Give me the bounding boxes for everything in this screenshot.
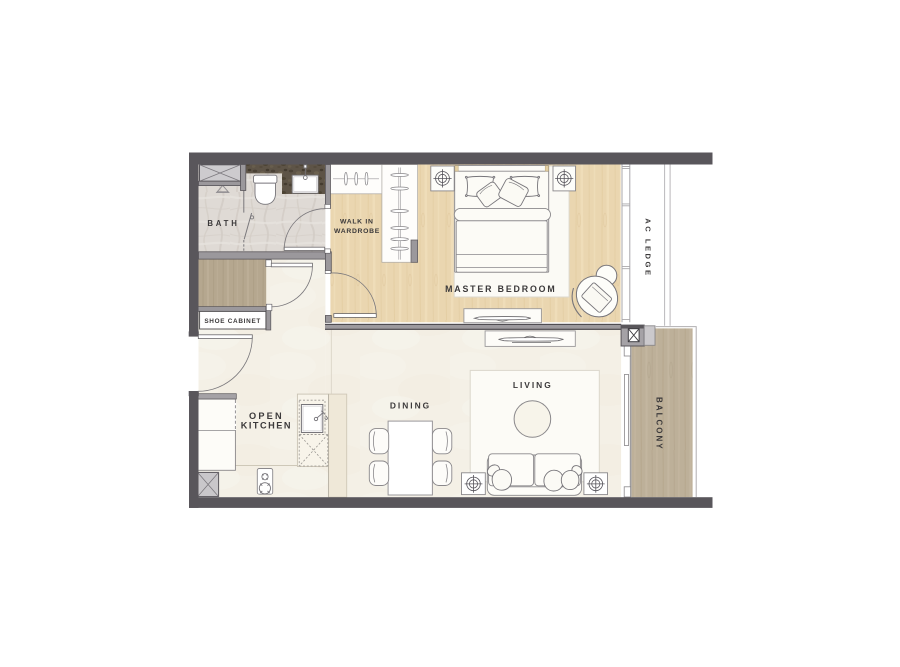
svg-text:SHOE CABINET: SHOE CABINET [204, 318, 261, 325]
svg-text:BATH: BATH [207, 219, 239, 228]
svg-text:WARDROBE: WARDROBE [334, 228, 380, 235]
svg-text:MASTER BEDROOM: MASTER BEDROOM [445, 284, 556, 294]
svg-text:WALK IN: WALK IN [340, 219, 374, 226]
svg-text:AC LEDGE: AC LEDGE [644, 218, 653, 277]
svg-text:KITCHEN: KITCHEN [241, 421, 292, 431]
svg-text:DINING: DINING [390, 400, 431, 410]
svg-text:BALCONY: BALCONY [654, 397, 663, 451]
svg-text:OPEN: OPEN [249, 411, 284, 421]
svg-text:LIVING: LIVING [513, 380, 553, 390]
